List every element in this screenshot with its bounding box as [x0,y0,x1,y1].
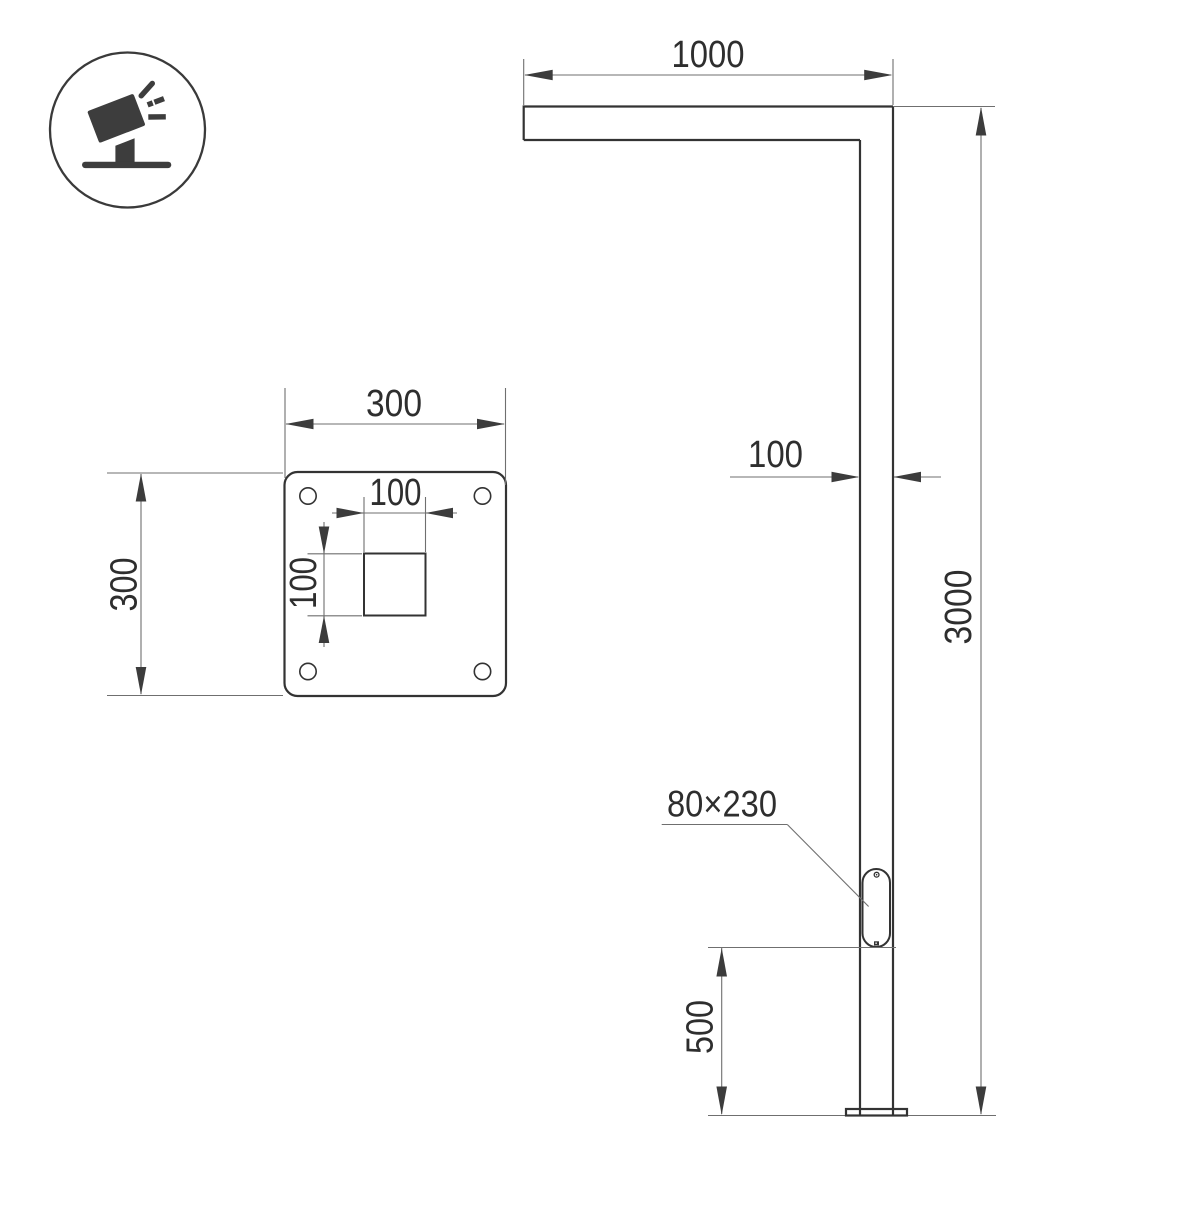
svg-text:300: 300 [366,383,422,425]
svg-text:1000: 1000 [672,34,745,76]
svg-text:100: 100 [283,557,325,609]
svg-text:100: 100 [370,472,422,514]
svg-text:300: 300 [104,558,146,612]
svg-text:80×230: 80×230 [667,784,777,825]
svg-text:500: 500 [680,1000,722,1054]
svg-text:100: 100 [748,434,803,476]
svg-text:3000: 3000 [938,570,980,645]
